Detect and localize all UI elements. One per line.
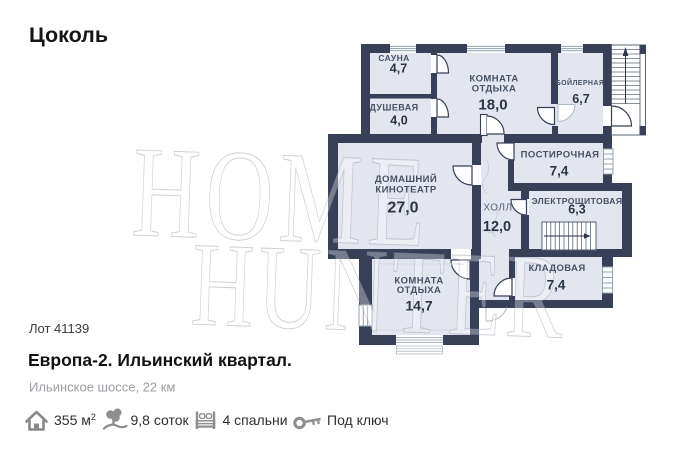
svg-text:Лот 41139: Лот 41139 (29, 321, 89, 336)
svg-text:ДУШЕВАЯ: ДУШЕВАЯ (370, 103, 419, 113)
svg-text:27,0: 27,0 (387, 200, 418, 217)
svg-text:Ильинское шоссе, 22 км: Ильинское шоссе, 22 км (29, 380, 175, 395)
svg-text:Под ключ: Под ключ (327, 412, 389, 428)
svg-text:7,4: 7,4 (550, 164, 569, 179)
svg-text:7,4: 7,4 (547, 278, 566, 293)
svg-text:HUNTER: HUNTER (189, 217, 570, 364)
svg-text:4,7: 4,7 (390, 62, 407, 76)
svg-text:КИНОТЕАТР: КИНОТЕАТР (375, 185, 436, 196)
svg-text:4,0: 4,0 (390, 114, 407, 128)
svg-text:4 спальни: 4 спальни (223, 412, 288, 428)
svg-text:Цоколь: Цоколь (29, 23, 108, 47)
svg-text:9,8 соток: 9,8 соток (131, 412, 190, 428)
svg-text:355 м2: 355 м2 (54, 412, 96, 428)
svg-text:КЛАДОВАЯ: КЛАДОВАЯ (528, 263, 585, 274)
svg-text:ОТДЫХА: ОТДЫХА (472, 84, 517, 95)
svg-text:ОТДЫХА: ОТДЫХА (397, 285, 442, 296)
svg-text:ХОЛЛ: ХОЛЛ (483, 203, 512, 214)
svg-text:ПОСТИРОЧНАЯ: ПОСТИРОЧНАЯ (521, 150, 600, 161)
svg-text:БОЙЛЕРНАЯ: БОЙЛЕРНАЯ (556, 78, 605, 87)
svg-text:6,3: 6,3 (568, 203, 585, 217)
svg-text:ДОМАШНИЙ: ДОМАШНИЙ (375, 173, 437, 185)
svg-text:18,0: 18,0 (478, 97, 507, 114)
svg-text:6,7: 6,7 (572, 92, 589, 106)
svg-text:12,0: 12,0 (483, 219, 511, 235)
svg-text:Европа-2. Ильинский квартал.: Европа-2. Ильинский квартал. (28, 350, 292, 370)
svg-text:14,7: 14,7 (405, 298, 432, 314)
